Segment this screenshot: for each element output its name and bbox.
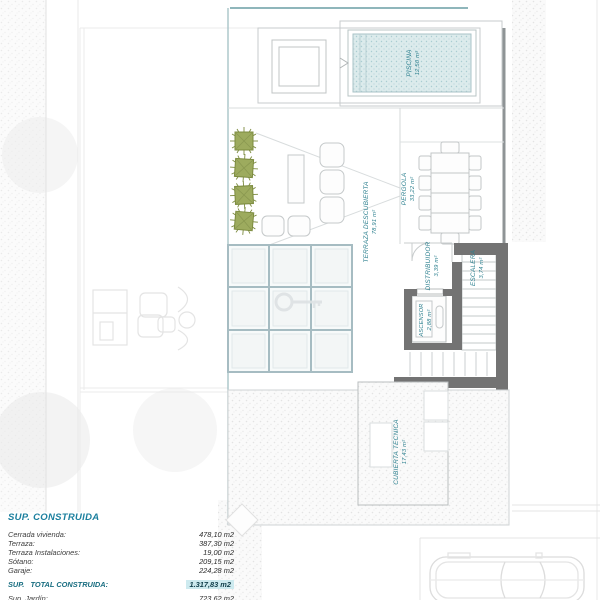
- terrace-furniture: [262, 143, 344, 236]
- garden-gravel-right: [512, 0, 546, 242]
- table-row: Sótano: 209,15 m2: [8, 557, 234, 566]
- room-label-pergola: PERGOLA 33,22 m²: [400, 173, 418, 206]
- table-row: Garaje: 224,28 m2: [8, 566, 234, 575]
- stair-treads-lower: [410, 352, 487, 376]
- table-row: Cerrada vivienda: 478,10 m2: [8, 530, 234, 539]
- room-label-escalera: ESCALERA 3,74 m²: [469, 250, 487, 286]
- skylight-grid: [228, 245, 352, 372]
- room-label-piscina: PISCINA 12,50 m²: [405, 49, 423, 76]
- table-row: Terraza Instalaciones: 19,00 m2: [8, 548, 234, 557]
- car-icon: [430, 553, 584, 600]
- lower-floor-furniture: [93, 287, 195, 350]
- summary-title: SUP. CONSTRUIDA: [8, 512, 234, 523]
- summary-table: SUP. CONSTRUIDA Cerrada vivienda: 478,10…: [8, 512, 234, 600]
- table-row: Terraza: 387,30 m2: [8, 539, 234, 548]
- table-row-total: SUP. TOTAL CONSTRUIDA: 1.317,83 m2: [8, 580, 234, 589]
- floor-plan-canvas: PISCINA 12,50 m² TERRAZA DESCUBIERTA 78,…: [0, 0, 600, 600]
- room-label-ascensor: ASCENSOR 2,88 m²: [418, 304, 435, 337]
- plant-icon: [229, 127, 259, 236]
- table-row: Sup. Jardín: 723,62 m2: [8, 594, 234, 600]
- pool-ladder-icon: [340, 58, 348, 68]
- room-label-cubierta-tecnica: CUBIERTA TECNICA 17,43 m²: [392, 419, 410, 485]
- room-label-distribuidor: DISTRIBUIDOR 3,39 m²: [424, 242, 442, 291]
- plan-drawing: [0, 0, 600, 600]
- jacuzzi-skylight: [272, 40, 326, 93]
- room-label-terraza-descubierta: TERRAZA DESCUBIERTA 78,91 m²: [362, 181, 380, 262]
- dining-set: [419, 142, 481, 244]
